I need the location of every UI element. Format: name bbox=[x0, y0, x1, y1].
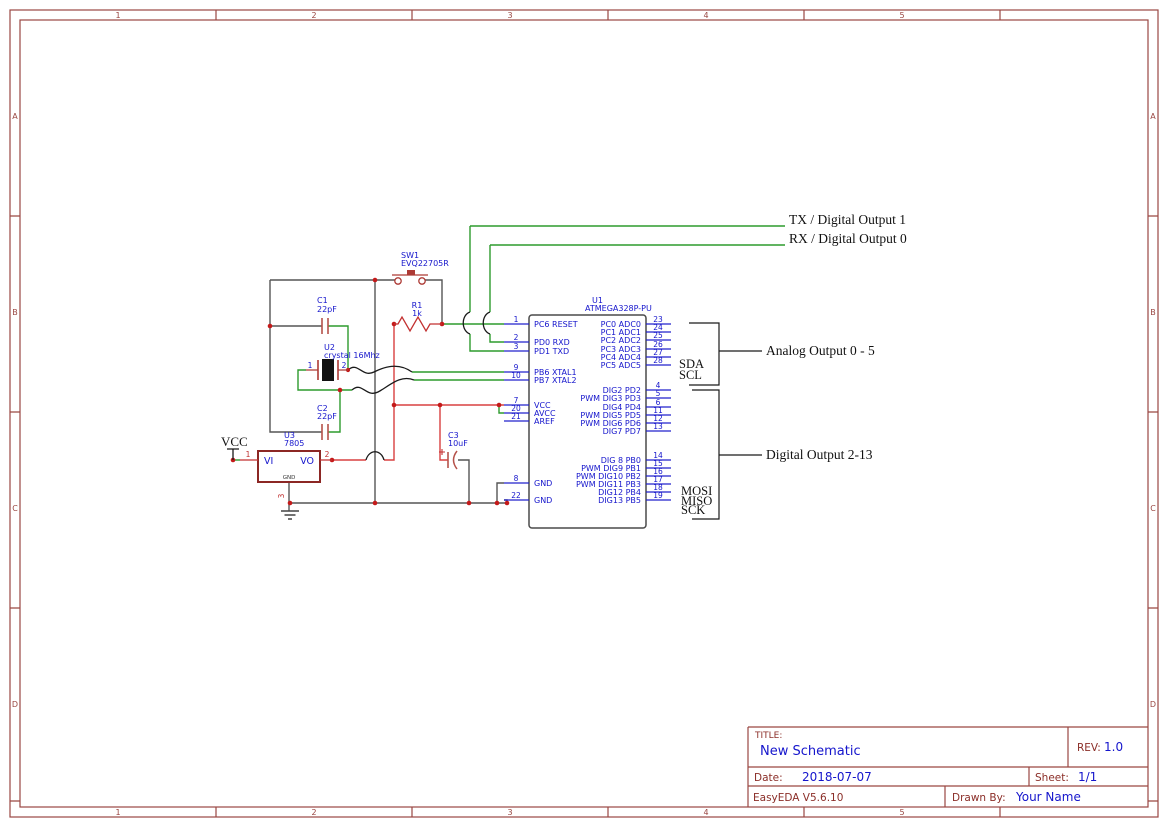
svg-text:2: 2 bbox=[514, 333, 519, 342]
drawn-by-value[interactable]: Your Name bbox=[1015, 790, 1081, 804]
svg-text:PC6 RESET: PC6 RESET bbox=[534, 320, 578, 329]
vcc-net-flag[interactable] bbox=[227, 449, 239, 460]
vcc-label[interactable]: VCC bbox=[221, 434, 248, 449]
svg-text:28: 28 bbox=[653, 356, 663, 365]
c1-symbol[interactable] bbox=[322, 318, 328, 334]
rev-value[interactable]: 1.0 bbox=[1104, 740, 1123, 754]
u2-pin1-number: 1 bbox=[308, 361, 313, 370]
u1-left-pin-numbers: 1 2 3 9 10 7 20 21 8 22 bbox=[511, 315, 521, 500]
analog-output-label[interactable]: Analog Output 0 - 5 bbox=[766, 343, 875, 358]
u3-gnd-label: GND bbox=[283, 475, 296, 481]
frame-col-3-top: 3 bbox=[507, 11, 512, 20]
rev-label: REV: bbox=[1077, 742, 1101, 754]
svg-text:AREF: AREF bbox=[534, 417, 555, 426]
frame-row-c-right: C bbox=[1150, 504, 1156, 513]
u2-pin2-number: 2 bbox=[342, 361, 347, 370]
u2-value-label[interactable]: crystal 16Mhz bbox=[324, 351, 380, 360]
svg-text:PD1 TXD: PD1 TXD bbox=[534, 347, 569, 356]
svg-text:PWM DIG3 PD3: PWM DIG3 PD3 bbox=[580, 394, 641, 403]
frame-row-a-right: A bbox=[1150, 112, 1156, 121]
signal-wires[interactable] bbox=[233, 226, 785, 460]
frame-col-4-bottom: 4 bbox=[703, 808, 708, 817]
svg-text:PB7 XTAL2: PB7 XTAL2 bbox=[534, 376, 577, 385]
u3-vo-label: VO bbox=[300, 456, 314, 467]
c3-value-label[interactable]: 10uF bbox=[448, 439, 468, 448]
frame-col-1-bottom: 1 bbox=[115, 808, 120, 817]
date-label: Date: bbox=[754, 772, 783, 784]
c1-ref-label[interactable]: C1 bbox=[317, 296, 328, 305]
sheet-value[interactable]: 1/1 bbox=[1078, 770, 1097, 784]
rx-net-label[interactable]: RX / Digital Output 0 bbox=[789, 231, 907, 246]
schematic-title[interactable]: New Schematic bbox=[760, 744, 861, 759]
svg-text:GND: GND bbox=[534, 496, 552, 505]
sw1-symbol[interactable] bbox=[392, 270, 428, 284]
frame-col-5-top: 5 bbox=[899, 11, 904, 20]
frame-col-2-bottom: 2 bbox=[311, 808, 316, 817]
frame-col-2-top: 2 bbox=[311, 11, 316, 20]
date-value[interactable]: 2018-07-07 bbox=[802, 770, 872, 784]
frame-col-4-top: 4 bbox=[703, 11, 708, 20]
schematic-canvas[interactable]: 1 2 3 4 5 1 2 3 4 5 A B C D A B C D bbox=[0, 0, 1169, 827]
svg-text:PC2 ADC2: PC2 ADC2 bbox=[601, 336, 641, 345]
frame-col-1-top: 1 bbox=[115, 11, 120, 20]
title-label: TITLE: bbox=[754, 731, 782, 741]
frame-row-a-left: A bbox=[12, 112, 18, 121]
frame-row-c-left: C bbox=[12, 504, 18, 513]
svg-text:5: 5 bbox=[656, 389, 661, 398]
digital-output-label[interactable]: Digital Output 2-13 bbox=[766, 447, 873, 462]
sck-label[interactable]: SCK bbox=[681, 503, 705, 517]
svg-text:13: 13 bbox=[653, 422, 663, 431]
svg-text:PD0 RXD: PD0 RXD bbox=[534, 338, 570, 347]
svg-text:1: 1 bbox=[514, 315, 519, 324]
c3-symbol[interactable] bbox=[439, 449, 457, 469]
c2-value-label[interactable]: 22pF bbox=[317, 412, 337, 421]
r1-value-label[interactable]: 1k bbox=[412, 309, 422, 318]
u3-pin3-number: 3 bbox=[277, 493, 286, 498]
u1-value-label[interactable]: ATMEGA328P-PU bbox=[585, 304, 652, 313]
frame-col-5-bottom: 5 bbox=[899, 808, 904, 817]
frame-col-3-bottom: 3 bbox=[507, 808, 512, 817]
ground-symbol[interactable] bbox=[281, 511, 299, 519]
svg-text:DIG7 PD7: DIG7 PD7 bbox=[603, 427, 641, 436]
software-version-label: EasyEDA V5.6.10 bbox=[753, 792, 843, 804]
svg-text:19: 19 bbox=[653, 491, 663, 500]
power-wires[interactable] bbox=[332, 324, 504, 460]
title-block: TITLE: New Schematic REV: 1.0 Date: 2018… bbox=[748, 727, 1148, 807]
u1-right-pin-numbers: 23 24 25 26 27 28 4 5 6 11 12 13 14 15 1… bbox=[653, 315, 663, 500]
u3-pin2-number: 2 bbox=[325, 450, 330, 459]
tx-net-label[interactable]: TX / Digital Output 1 bbox=[789, 212, 906, 227]
svg-text:3: 3 bbox=[514, 342, 519, 351]
svg-text:21: 21 bbox=[511, 412, 521, 421]
svg-text:22: 22 bbox=[511, 491, 521, 500]
u3-pin1-number: 1 bbox=[246, 450, 251, 459]
wire-crossover-arcs[interactable] bbox=[348, 312, 490, 460]
frame-row-d-left: D bbox=[12, 700, 18, 709]
svg-text:8: 8 bbox=[514, 474, 519, 483]
sw1-value-label[interactable]: EVQ22705R bbox=[401, 259, 449, 268]
c1-value-label[interactable]: 22pF bbox=[317, 305, 337, 314]
drawn-by-label: Drawn By: bbox=[952, 792, 1006, 804]
svg-text:10: 10 bbox=[511, 371, 521, 380]
frame-row-b-left: B bbox=[12, 308, 18, 317]
c2-symbol[interactable] bbox=[322, 424, 328, 440]
sheet-label: Sheet: bbox=[1035, 772, 1069, 784]
svg-text:25: 25 bbox=[653, 331, 663, 340]
r1-symbol[interactable] bbox=[394, 317, 442, 331]
svg-text:GND: GND bbox=[534, 479, 552, 488]
frame-row-d-right: D bbox=[1150, 700, 1156, 709]
u3-vi-label: VI bbox=[264, 456, 273, 467]
frame-row-b-right: B bbox=[1150, 308, 1156, 317]
u3-value-label[interactable]: 7805 bbox=[284, 439, 304, 448]
svg-text:DIG13 PB5: DIG13 PB5 bbox=[598, 496, 641, 505]
scl-label[interactable]: SCL bbox=[679, 368, 702, 382]
svg-text:PC5 ADC5: PC5 ADC5 bbox=[601, 361, 641, 370]
